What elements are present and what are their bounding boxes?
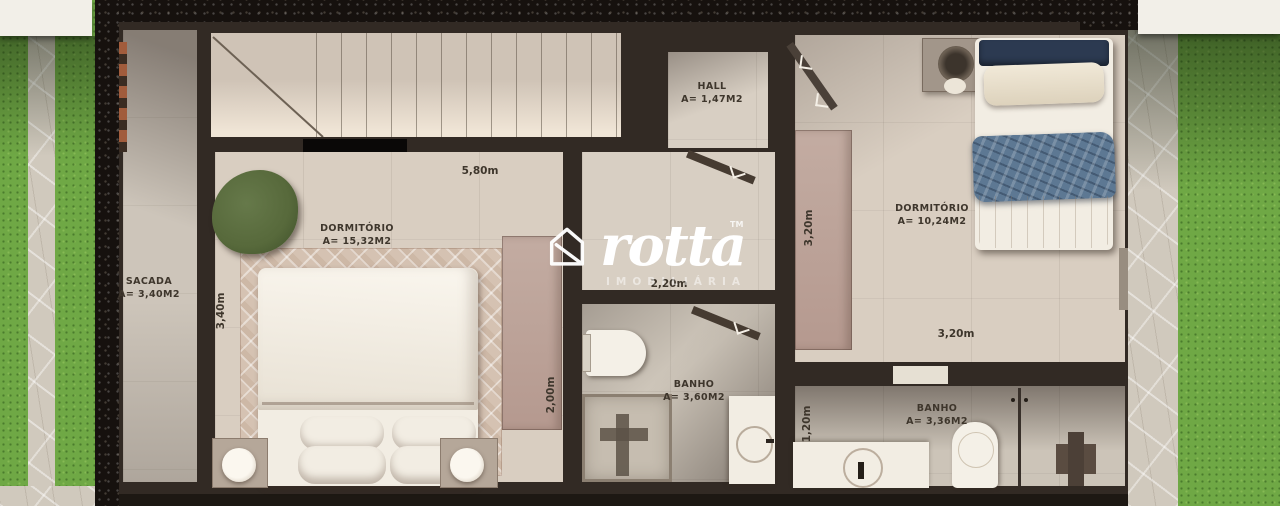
balcony-ladder	[119, 42, 127, 152]
room-label-banho-right: BANHO A= 3,36M2	[906, 402, 968, 429]
bed-pillow	[298, 446, 386, 484]
room-label-sacada: SACADA A= 3,40M2	[118, 275, 180, 302]
room-name: DORMITÓRIO	[895, 203, 969, 214]
brand-tagline: IMOBILIÁRIA	[606, 276, 746, 288]
brand-logo: rotta TM IMOBILIÁRIA	[544, 218, 774, 290]
glass-dot	[1011, 398, 1015, 402]
dim-dorm-left-height: 3,40m	[215, 293, 227, 330]
room-area: A= 3,60M2	[663, 392, 725, 403]
gravel-strip-top	[119, 0, 1128, 22]
shadow-grass-right	[1128, 30, 1280, 190]
room-area: A= 15,32M2	[323, 236, 392, 247]
brand-name: rotta	[600, 218, 745, 274]
speaker-base	[944, 78, 966, 94]
dim-stairs-width: 5,80m	[462, 165, 499, 177]
table-lamp	[450, 448, 484, 482]
room-name: DORMITÓRIO	[320, 223, 394, 234]
room-area: A= 3,36M2	[906, 416, 968, 427]
dim-banho-right-height: 1,20m	[801, 406, 813, 443]
dim-text: 3,20m	[938, 328, 975, 340]
toilet-center	[586, 330, 646, 376]
shower-arm-center	[616, 414, 629, 476]
bed-blanket-blue	[972, 132, 1116, 203]
garden-path-left-bottom	[0, 486, 95, 506]
bed-fold-line	[262, 402, 474, 405]
house-icon	[544, 224, 590, 270]
wall-window-right	[1119, 248, 1128, 310]
bed-pillow	[300, 416, 384, 450]
dim-dorm-right-width: 3,20m	[938, 328, 975, 340]
dim-text: 3,40m	[215, 293, 227, 330]
wall-bottom-edge	[119, 494, 1128, 506]
faucet-center	[766, 439, 774, 443]
wall-recess	[893, 366, 948, 384]
gravel-corner-top-right	[1080, 0, 1138, 30]
concrete-slab-top-right	[1138, 0, 1280, 34]
speaker-lamp	[938, 46, 974, 82]
floorplan-canvas: SACADA A= 3,40M2 HALL A= 1,47M2 DORMITÓR…	[0, 0, 1280, 506]
dim-text: 5,80m	[462, 165, 499, 177]
room-area: A= 1,47M2	[681, 94, 743, 105]
dim-text: 3,20m	[803, 210, 815, 247]
room-label-dormitorio-left: DORMITÓRIO A= 15,32M2	[320, 222, 394, 249]
shadow-sacada	[123, 30, 197, 482]
room-name: BANHO	[917, 403, 958, 414]
dim-text: 1,20m	[801, 406, 813, 443]
brand-tm: TM	[730, 220, 743, 229]
dim-dorm-right-height: 3,20m	[803, 210, 815, 247]
glass-partition	[1018, 388, 1021, 486]
shower-arm-right	[1068, 432, 1084, 486]
toilet-center-tank	[582, 334, 591, 372]
door-mark-bedroom-right-2	[799, 55, 814, 70]
bed-duvet-right	[979, 196, 1109, 248]
dim-closet-depth: 2,00m	[545, 377, 557, 414]
glass-dot	[1024, 398, 1028, 402]
concrete-slab-top-left	[0, 0, 92, 36]
gravel-strip-left	[95, 0, 121, 506]
table-lamp	[222, 448, 256, 482]
stair-treads	[316, 33, 621, 137]
toilet-right-seat	[958, 432, 994, 468]
sink-bowl-center	[736, 426, 773, 463]
room-label-hall: HALL A= 1,47M2	[681, 80, 743, 107]
bed-pillow-right	[983, 62, 1104, 106]
room-area: A= 3,40M2	[118, 289, 180, 300]
stair-diagonal	[211, 33, 331, 137]
room-area: A= 10,24M2	[898, 216, 967, 227]
room-name: HALL	[697, 81, 726, 92]
shadow-grass-left	[0, 36, 95, 156]
doorway-opening	[303, 139, 407, 153]
room-name: SACADA	[126, 276, 172, 287]
room-label-banho-center: BANHO A= 3,60M2	[663, 378, 725, 405]
dim-text: 2,00m	[545, 377, 557, 414]
faucet-right	[858, 462, 864, 479]
room-label-dormitorio-right: DORMITÓRIO A= 10,24M2	[895, 202, 969, 229]
room-name: BANHO	[674, 379, 715, 390]
bed-duvet	[258, 268, 478, 410]
door-mark-bedroom-right	[815, 93, 830, 108]
